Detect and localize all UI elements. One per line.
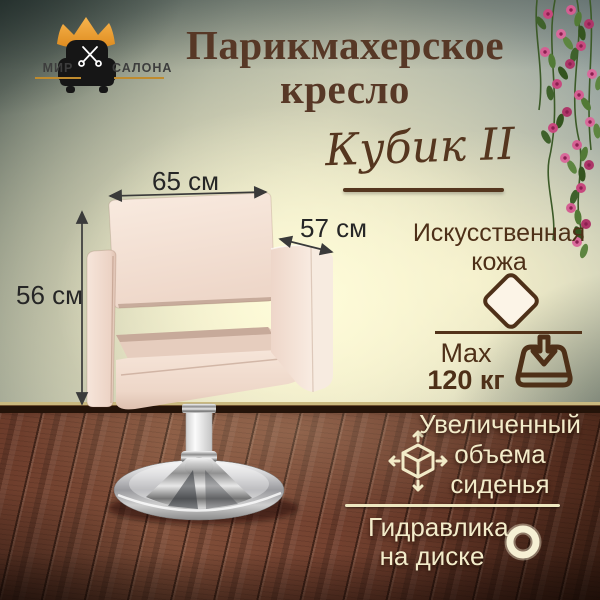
chair-base bbox=[108, 404, 298, 524]
disc-ring-icon bbox=[503, 522, 543, 562]
width-dimension-label: 65 см bbox=[152, 166, 219, 197]
seat-volume-line2: объема bbox=[418, 439, 582, 469]
depth-dimension-label: 57 см bbox=[300, 213, 367, 244]
height-dimension-label: 56 см bbox=[16, 280, 83, 311]
material-feature: Искусственная кожа bbox=[408, 219, 590, 277]
feature-divider-bottom bbox=[345, 504, 560, 507]
hydraulics-line2: на диске bbox=[368, 542, 496, 571]
max-weight-value: 120 кг bbox=[419, 365, 513, 396]
hydraulics-feature: Гидравлика на диске bbox=[368, 513, 496, 571]
weight-down-arrow-icon bbox=[509, 334, 579, 396]
hydraulics-line1: Гидравлика bbox=[368, 513, 496, 542]
seat-volume-line3: сиденья bbox=[418, 469, 582, 499]
seat-volume-line1: Увеличенный bbox=[418, 409, 582, 439]
chair-upholstery bbox=[87, 193, 333, 410]
material-line1: Искусственная bbox=[408, 219, 590, 248]
material-line2: кожа bbox=[408, 248, 590, 277]
product-card: МИР САЛОНА Парикмахерское кресло Кубик I… bbox=[0, 0, 600, 600]
seat-volume-feature: Увеличенный объема сиденья bbox=[418, 409, 582, 499]
